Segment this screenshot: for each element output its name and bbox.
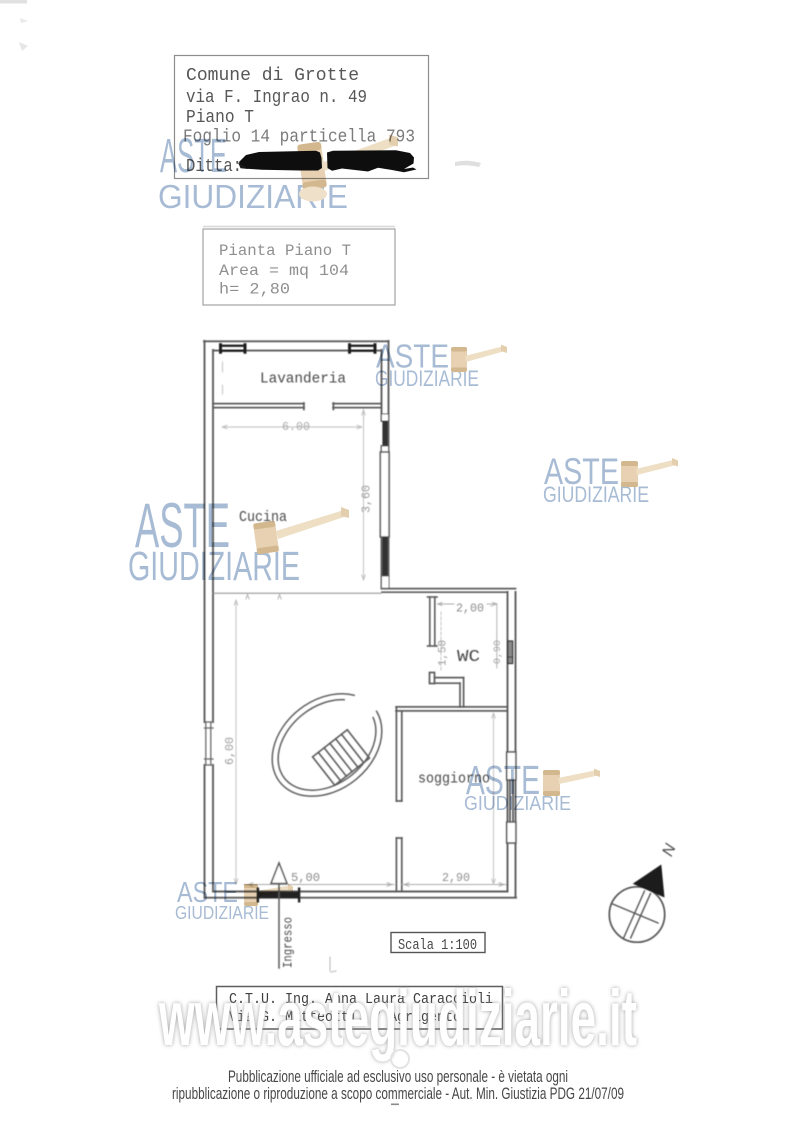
svg-text:Comune di Grotte: Comune di Grotte [186, 66, 359, 86]
svg-text:2,90: 2,90 [442, 871, 470, 885]
svg-text:www.astegiudiziarie.it: www.astegiudiziarie.it [158, 973, 637, 1062]
svg-text:Pubblicazione ufficiale ad esc: Pubblicazione ufficiale ad esclusivo uso… [228, 1068, 568, 1086]
svg-text:6.00: 6.00 [282, 420, 310, 434]
svg-text:5,00: 5,00 [291, 871, 320, 885]
svg-text:2,00: 2,00 [456, 603, 484, 616]
svg-text:3,60: 3,60 [360, 485, 374, 513]
svg-text:6,00: 6,00 [223, 737, 237, 765]
svg-text:0,90: 0,90 [492, 640, 504, 664]
svg-text:1,50: 1,50 [438, 640, 450, 666]
svg-text:Ingresso: Ingresso [281, 917, 296, 968]
svg-text:Scala 1:100: Scala 1:100 [398, 938, 477, 954]
svg-text:Lavanderia: Lavanderia [260, 371, 346, 388]
svg-text:Area = mq 104: Area = mq 104 [219, 262, 349, 280]
svg-text:via F. Ingrao n. 49: via F. Ingrao n. 49 [186, 88, 367, 108]
svg-text:WC: WC [457, 647, 480, 666]
svg-text:h= 2,80: h= 2,80 [219, 281, 290, 299]
svg-text:Pianta Piano T: Pianta Piano T [219, 242, 351, 260]
svg-text:ripubblicazione o riproduzione: ripubblicazione o riproduzione a scopo c… [172, 1085, 624, 1103]
svg-text:Piano T: Piano T [186, 108, 254, 128]
svg-text:ASTE: ASTE [160, 130, 227, 183]
